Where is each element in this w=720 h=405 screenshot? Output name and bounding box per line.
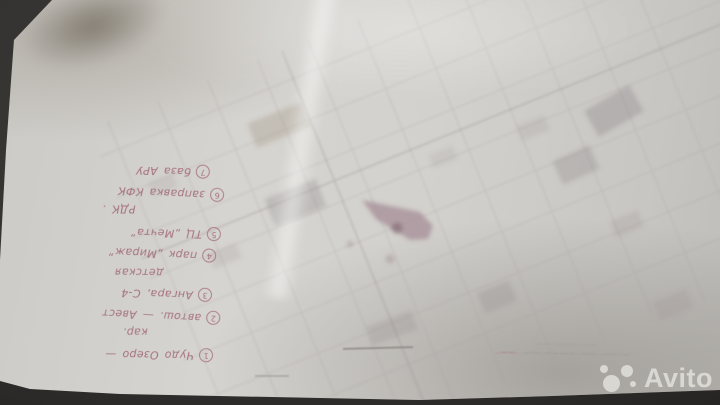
handwritten-line: детская <box>10 260 164 283</box>
paper-sheet: 1Чудо Озеро — кар. 2автош. — Авест 3Анга… <box>0 0 720 405</box>
handwritten-line: кар. <box>8 322 148 343</box>
paper-top-sheen <box>120 0 680 100</box>
handwritten-line: 1Чудо Озеро — <box>7 342 213 365</box>
handwritten-line: РДК . <box>12 198 136 219</box>
handwritten-text: база АРУ <box>136 160 191 182</box>
handwritten-text: детская <box>115 261 164 282</box>
handwritten-text: заправка КФК <box>117 180 205 205</box>
handwritten-list: 1Чудо Озеро — кар. 2автош. — Авест 3Анга… <box>7 153 225 368</box>
circled-number: 6 <box>210 187 225 202</box>
circled-number: 1 <box>199 348 213 362</box>
circled-number: 7 <box>196 165 210 179</box>
avito-watermark-label: Avito <box>644 363 713 394</box>
circled-number: 4 <box>202 249 217 264</box>
highlighted-parcel <box>347 200 433 264</box>
handwritten-text: кар. <box>123 322 148 343</box>
handwritten-text: Ангара, С-4 <box>121 282 194 305</box>
circled-number: 2 <box>206 310 221 325</box>
printed-rule-fragment <box>255 375 289 377</box>
circled-number: 3 <box>198 288 212 302</box>
avito-watermark: Avito <box>595 362 713 394</box>
map-caption: —··——···——··—·———··——·· ·——·· ——··———··—… <box>416 337 630 359</box>
handwritten-text: Чудо Озеро — <box>105 343 194 365</box>
photo-stage: 1Чудо Озеро — кар. 2автош. — Авест 3Анга… <box>0 0 720 405</box>
handwritten-text: РДК . <box>102 198 136 219</box>
handwritten-text: ТЦ „Мечта” <box>131 221 203 244</box>
caption-red-text: ·——·· <box>495 349 517 357</box>
circled-number: 5 <box>207 227 221 241</box>
avito-logo-icon <box>595 362 641 394</box>
